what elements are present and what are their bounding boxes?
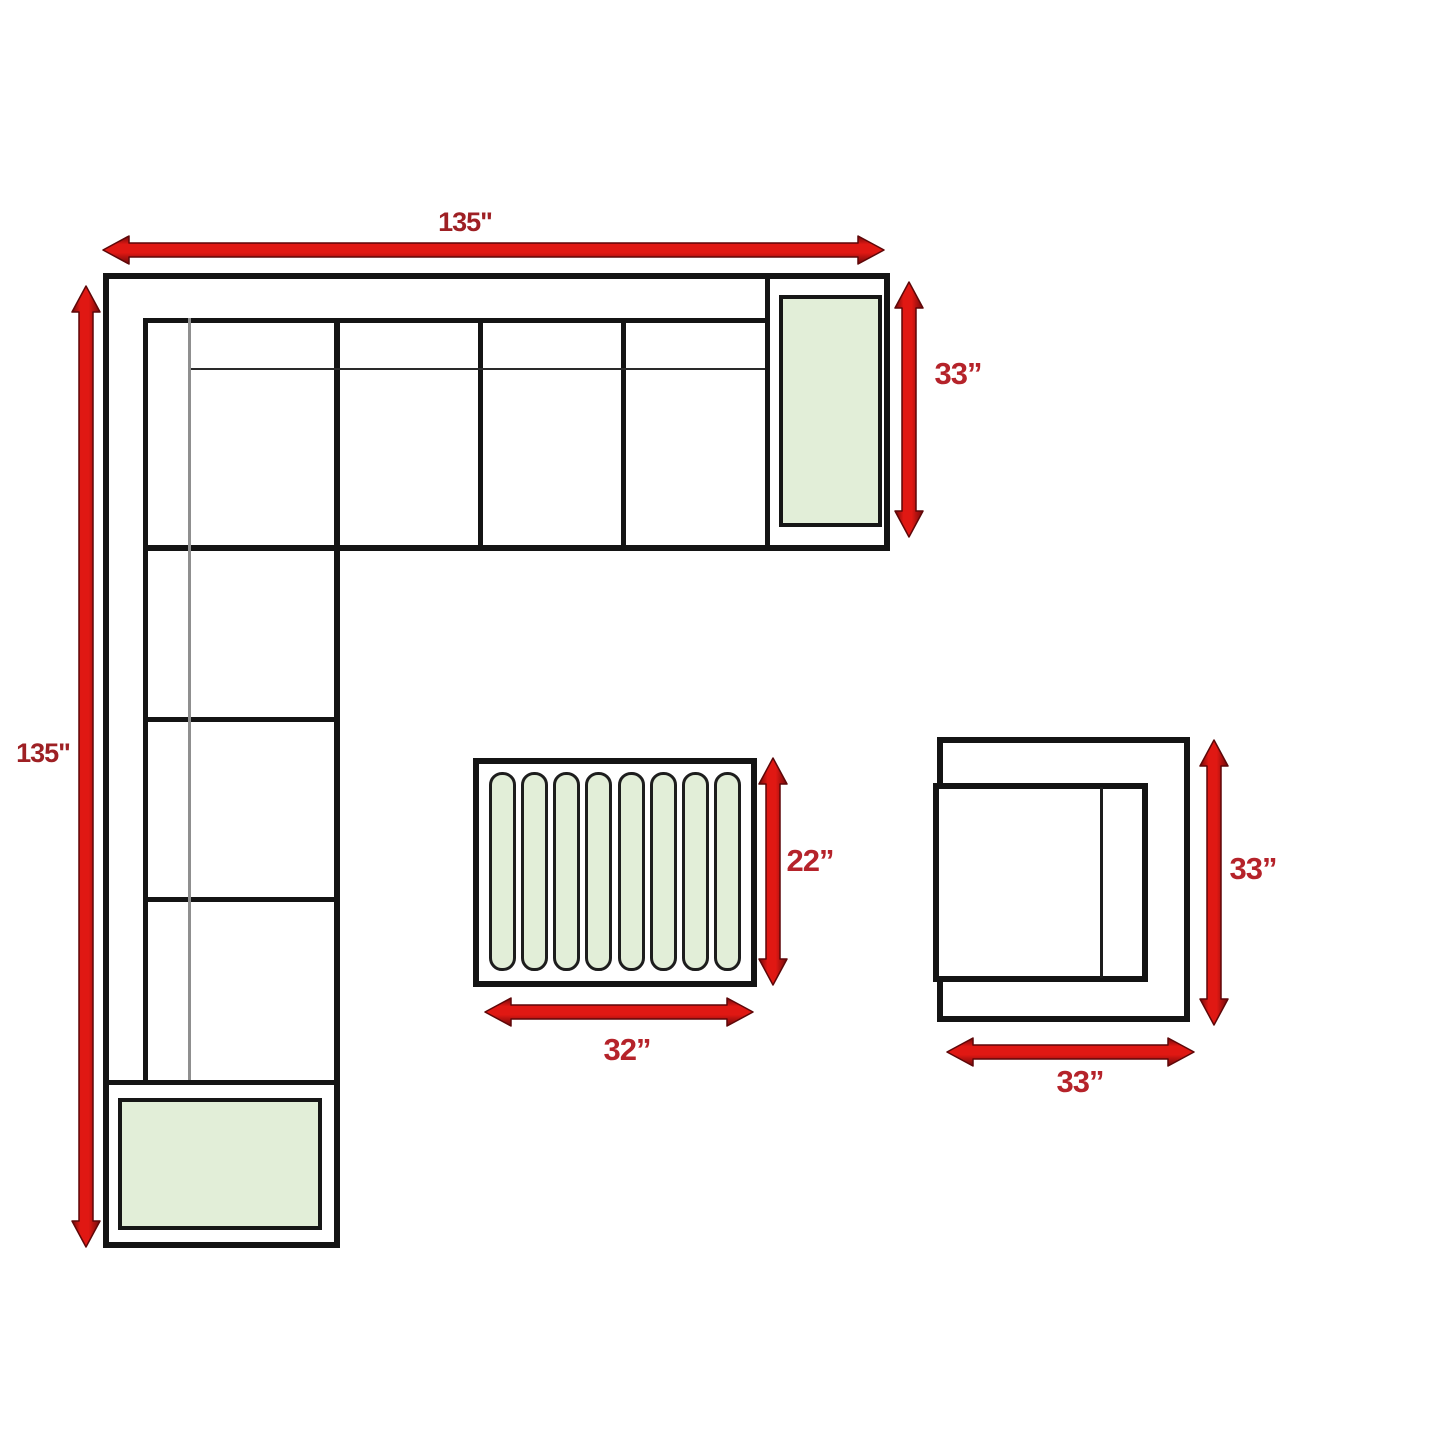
sofa-seat-border-top [143, 318, 770, 323]
sofa-end-divider-bottom [103, 1080, 340, 1085]
table-slat [650, 772, 677, 971]
armchair-armrest-divider [1100, 787, 1103, 978]
sofa-height-dimension-label: 135" [6, 738, 80, 769]
table-slat [585, 772, 612, 971]
table-slat [618, 772, 645, 971]
coffee-table-slats [489, 772, 741, 971]
sofa-end-cushion-right [779, 295, 882, 527]
sofa-width-dimension-arrow [102, 234, 885, 266]
sofa-seat-divider-h2 [143, 897, 340, 902]
sofa-outline-right-top-arm [884, 273, 890, 551]
sofa-back-cushion-line-v [188, 318, 191, 1080]
table-slat [553, 772, 580, 971]
sofa-outline-top [103, 273, 890, 279]
furniture-dimension-diagram: 135" 135" 33” 22” 32” [0, 0, 1445, 1445]
sofa-back-cushion-line-h [188, 368, 765, 370]
sofa-width-dimension-label: 135" [395, 207, 535, 238]
table-width-dimension-arrow [484, 996, 754, 1028]
sofa-seat-divider-h1 [143, 717, 340, 722]
table-width-dimension-label: 32” [587, 1032, 667, 1068]
table-slat [489, 772, 516, 971]
sofa-seat-divider-v1 [478, 318, 483, 545]
sofa-depth-dimension-arrow [893, 281, 925, 538]
sofa-outline-right-vertical-arm [334, 318, 340, 1248]
sofa-seat-border-left [143, 318, 148, 1080]
sofa-end-divider-right [765, 273, 770, 545]
table-slat [714, 772, 741, 971]
sofa-outline-bottom-top-arm [143, 545, 890, 551]
sofa-seat-divider-v2 [621, 318, 626, 545]
sofa-end-cushion-bottom [118, 1098, 322, 1230]
table-slat [682, 772, 709, 971]
chair-width-dimension-label: 33” [1040, 1064, 1120, 1100]
chair-height-dimension-label: 33” [1213, 851, 1293, 887]
table-slat [521, 772, 548, 971]
sofa-depth-dimension-label: 33” [918, 356, 998, 392]
armchair-seat [933, 783, 1148, 982]
table-depth-dimension-label: 22” [775, 843, 845, 879]
coffee-table [473, 758, 757, 987]
sofa-outline-left [103, 273, 109, 1248]
sofa-outline-bottom-vertical-arm [103, 1242, 340, 1248]
